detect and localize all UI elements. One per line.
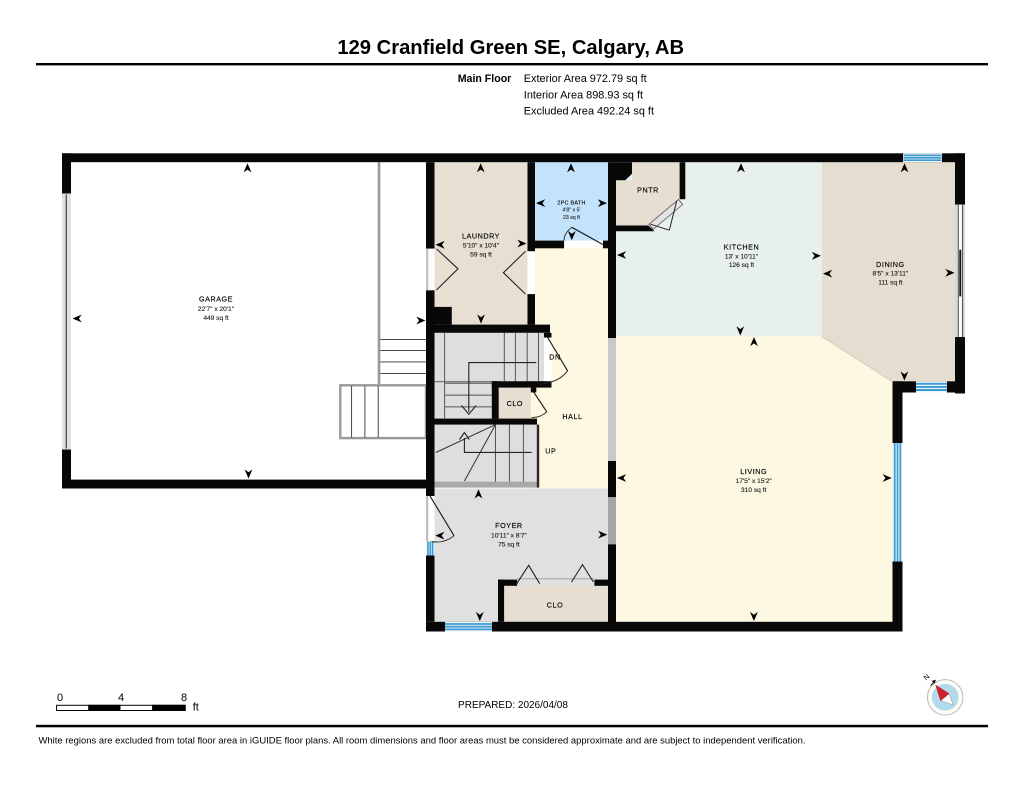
svg-text:129 Cranfield Green SE, Calgar: 129 Cranfield Green SE, Calgary, AB: [337, 37, 684, 59]
svg-text:LAUNDRY: LAUNDRY: [462, 232, 500, 241]
svg-text:449 sq ft: 449 sq ft: [203, 315, 228, 322]
svg-text:4: 4: [118, 692, 124, 704]
svg-text:13' x 10'11": 13' x 10'11": [725, 253, 759, 260]
svg-text:HALL: HALL: [562, 412, 582, 421]
svg-text:CLO: CLO: [547, 601, 563, 610]
svg-text:17'5" x 15'2": 17'5" x 15'2": [736, 478, 773, 485]
svg-text:DN: DN: [549, 353, 560, 362]
svg-text:0: 0: [57, 692, 63, 704]
svg-text:23 sq ft: 23 sq ft: [563, 215, 581, 221]
svg-text:DINING: DINING: [876, 260, 904, 269]
svg-text:111 sq ft: 111 sq ft: [878, 280, 902, 287]
svg-text:22'7" x 20'1": 22'7" x 20'1": [198, 306, 235, 313]
svg-text:GARAGE: GARAGE: [199, 295, 233, 304]
svg-text:310 sq ft: 310 sq ft: [741, 487, 766, 494]
svg-text:75 sq ft: 75 sq ft: [498, 541, 520, 548]
svg-text:CLO: CLO: [507, 399, 523, 408]
svg-text:Exterior Area 972.79 sq ft: Exterior Area 972.79 sq ft: [524, 73, 647, 85]
svg-text:59 sq ft: 59 sq ft: [470, 251, 492, 258]
svg-text:Interior Area 898.93 sq ft: Interior Area 898.93 sq ft: [524, 89, 643, 101]
svg-text:PREPARED: 2026/04/08: PREPARED: 2026/04/08: [458, 700, 568, 711]
svg-text:PNTR: PNTR: [637, 186, 659, 195]
svg-text:LIVING: LIVING: [740, 467, 767, 476]
svg-text:4'8" x 5': 4'8" x 5': [563, 208, 581, 214]
svg-text:5'10" x 10'4": 5'10" x 10'4": [463, 242, 500, 249]
svg-text:ft: ft: [193, 702, 199, 714]
svg-text:FOYER: FOYER: [495, 521, 523, 530]
svg-text:8'5" x 13'11": 8'5" x 13'11": [873, 271, 909, 278]
svg-text:126 sq ft: 126 sq ft: [729, 262, 754, 269]
svg-text:KITCHEN: KITCHEN: [724, 243, 759, 252]
svg-text:Main Floor: Main Floor: [458, 73, 512, 85]
svg-text:UP: UP: [545, 447, 556, 456]
svg-text:2PC BATH: 2PC BATH: [557, 200, 585, 206]
svg-text:8: 8: [181, 692, 187, 704]
svg-text:10'11" x 8'7": 10'11" x 8'7": [491, 532, 527, 539]
svg-text:Excluded Area 492.24 sq ft: Excluded Area 492.24 sq ft: [524, 106, 654, 118]
svg-text:White regions are excluded fro: White regions are excluded from total fl…: [39, 736, 806, 747]
